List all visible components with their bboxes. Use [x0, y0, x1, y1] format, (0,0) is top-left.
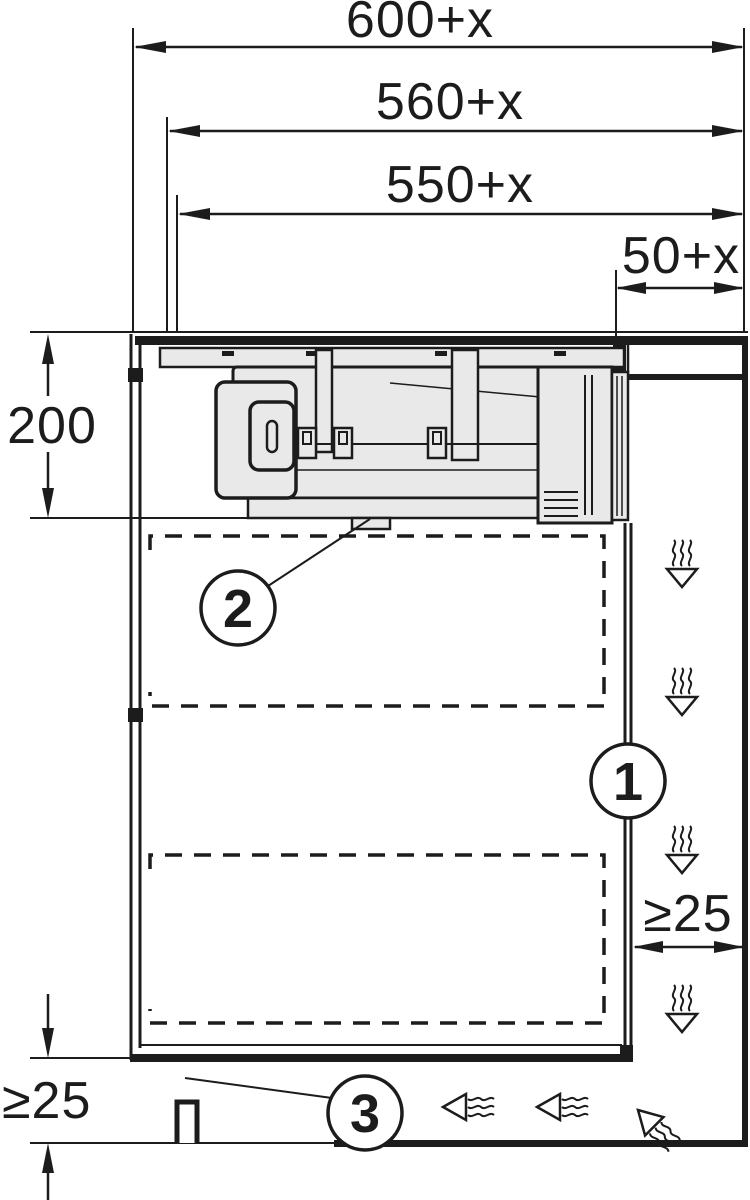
plinth-panel — [177, 1102, 197, 1143]
cabinet-bottom — [130, 1045, 633, 1062]
callout-3-number: 3 — [350, 1084, 380, 1144]
callout-3-leader — [185, 1078, 332, 1098]
junction-box-slot — [267, 421, 277, 452]
airflow-channel-arrows — [667, 540, 697, 1032]
diagram-svg: 600+x 560+x 550+x 50+x 200 ≥25 — [0, 0, 750, 1200]
dim-50x-label: 50+x — [622, 227, 740, 285]
airflow-left-arrow-2 — [537, 1094, 588, 1120]
wall-joint-upper — [128, 368, 143, 382]
cabinet-left-wall — [128, 334, 143, 1060]
airflow-left-arrow-1 — [443, 1094, 494, 1120]
dim-rear-gap-label: ≥25 — [643, 885, 732, 943]
dim-50x: 50+x — [616, 227, 744, 342]
hanger-strut-left — [316, 350, 332, 452]
airflow-down-arrow-3 — [667, 826, 697, 873]
callout-1-number: 1 — [613, 752, 643, 812]
airflow-down-arrow-4 — [667, 985, 697, 1032]
dim-550x-label: 550+x — [386, 156, 534, 214]
airflow-down-arrow-2 — [667, 668, 697, 715]
appliance-bottom-plate — [248, 498, 562, 518]
callout-2-leader — [268, 519, 370, 586]
appliance-frame — [160, 348, 624, 367]
callout-1: 1 — [591, 744, 665, 818]
dim-200-label: 200 — [7, 397, 97, 455]
installation-diagram: 600+x 560+x 550+x 50+x 200 ≥25 — [0, 0, 750, 1200]
appliance — [160, 348, 628, 529]
right-wall — [742, 336, 748, 1147]
dim-rear-gap: ≥25 — [633, 885, 744, 953]
callout-2-number: 2 — [223, 579, 253, 639]
dim-600x-label: 600+x — [346, 0, 494, 49]
fan-unit — [538, 367, 612, 523]
dim-plinth-gap: ≥25 — [2, 994, 131, 1200]
callout-3: 3 — [185, 1076, 402, 1150]
worktop-rear-band — [626, 336, 748, 345]
dim-560x-label: 560+x — [376, 73, 524, 131]
worktop-rear-slab — [628, 345, 748, 380]
wall-joint-lower — [128, 708, 143, 722]
airflow-diagonal-arrow — [629, 1101, 683, 1155]
duct-flange — [612, 372, 628, 520]
airflow-down-arrow-1 — [667, 540, 697, 587]
callout-2: 2 — [201, 519, 370, 645]
dim-plinth-gap-label: ≥25 — [2, 1072, 91, 1130]
drawer-outline-lower — [150, 855, 604, 1023]
